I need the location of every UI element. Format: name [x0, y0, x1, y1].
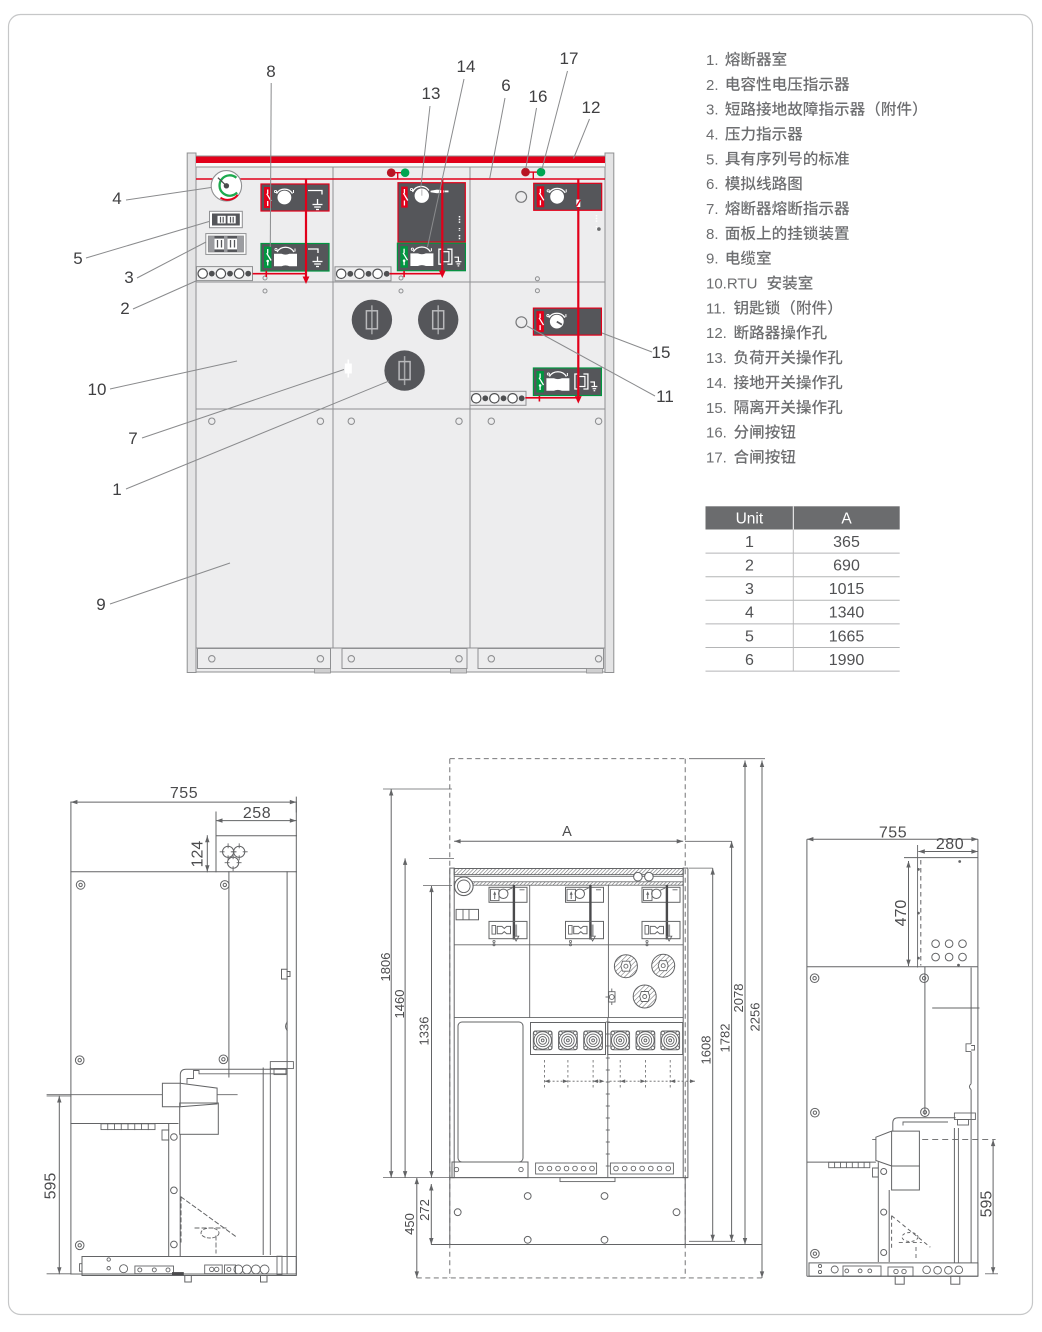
svg-text:450: 450 — [402, 1213, 417, 1235]
svg-text:12.: 12. — [706, 325, 727, 342]
svg-text:1340: 1340 — [829, 605, 865, 622]
svg-text:17.: 17. — [706, 450, 727, 467]
svg-text:755: 755 — [170, 785, 198, 802]
svg-text:1.: 1. — [706, 52, 719, 69]
svg-text:2: 2 — [120, 299, 129, 318]
svg-text:16.: 16. — [706, 425, 727, 442]
svg-text:2.: 2. — [706, 77, 719, 94]
svg-text:1990: 1990 — [829, 652, 865, 669]
svg-text:280: 280 — [936, 836, 964, 853]
svg-text:1: 1 — [745, 534, 754, 551]
svg-text:124: 124 — [190, 841, 207, 868]
svg-text:3: 3 — [745, 581, 754, 598]
svg-text:1336: 1336 — [417, 1017, 432, 1046]
svg-text:10.RTU: 10.RTU — [706, 276, 757, 293]
svg-text:A: A — [562, 824, 572, 840]
svg-text:5.: 5. — [706, 151, 719, 168]
svg-text:7.: 7. — [706, 201, 719, 218]
svg-text:2078: 2078 — [731, 984, 746, 1013]
svg-text:3.: 3. — [706, 102, 719, 119]
svg-text:2256: 2256 — [748, 1003, 763, 1032]
svg-text:12: 12 — [582, 98, 601, 117]
svg-text:1608: 1608 — [699, 1036, 714, 1065]
svg-text:6: 6 — [745, 652, 754, 669]
svg-text:1460: 1460 — [392, 990, 407, 1019]
svg-text:9.: 9. — [706, 251, 719, 268]
svg-text:1782: 1782 — [718, 1024, 733, 1053]
svg-text:13.: 13. — [706, 350, 727, 367]
svg-text:Unit: Unit — [736, 510, 764, 527]
svg-text:272: 272 — [417, 1199, 432, 1221]
svg-text:15.: 15. — [706, 400, 727, 417]
svg-text:4: 4 — [745, 605, 754, 622]
svg-text:1665: 1665 — [829, 628, 865, 645]
svg-text:7: 7 — [128, 429, 137, 448]
svg-text:4.: 4. — [706, 127, 719, 144]
svg-text:755: 755 — [879, 825, 907, 842]
svg-text:258: 258 — [243, 805, 271, 822]
svg-text:470: 470 — [893, 900, 910, 927]
svg-text:1015: 1015 — [829, 581, 865, 598]
svg-text:11: 11 — [656, 387, 674, 406]
svg-text:6: 6 — [501, 76, 510, 95]
svg-text:5: 5 — [745, 628, 754, 645]
svg-text:1806: 1806 — [378, 953, 393, 982]
svg-text:2: 2 — [745, 558, 754, 575]
svg-text:14.: 14. — [706, 375, 727, 392]
svg-text:595: 595 — [43, 1173, 60, 1200]
svg-text:8: 8 — [266, 62, 275, 81]
svg-text:4: 4 — [112, 189, 121, 208]
svg-text:690: 690 — [833, 558, 860, 575]
svg-text:365: 365 — [833, 534, 860, 551]
svg-text:17: 17 — [560, 49, 579, 68]
svg-text:A: A — [841, 510, 852, 527]
svg-text:6.: 6. — [706, 176, 719, 193]
svg-text:5: 5 — [73, 249, 82, 268]
svg-text:8.: 8. — [706, 226, 719, 243]
svg-text:3: 3 — [124, 268, 133, 287]
svg-text:13: 13 — [422, 84, 441, 103]
svg-text:15: 15 — [652, 343, 671, 362]
svg-text:1: 1 — [112, 480, 121, 499]
svg-text:16: 16 — [529, 87, 548, 106]
svg-text:9: 9 — [96, 595, 105, 614]
svg-text:14: 14 — [457, 57, 476, 76]
svg-text:10: 10 — [88, 380, 107, 399]
svg-text:11.: 11. — [706, 300, 726, 317]
svg-text:595: 595 — [979, 1191, 996, 1218]
